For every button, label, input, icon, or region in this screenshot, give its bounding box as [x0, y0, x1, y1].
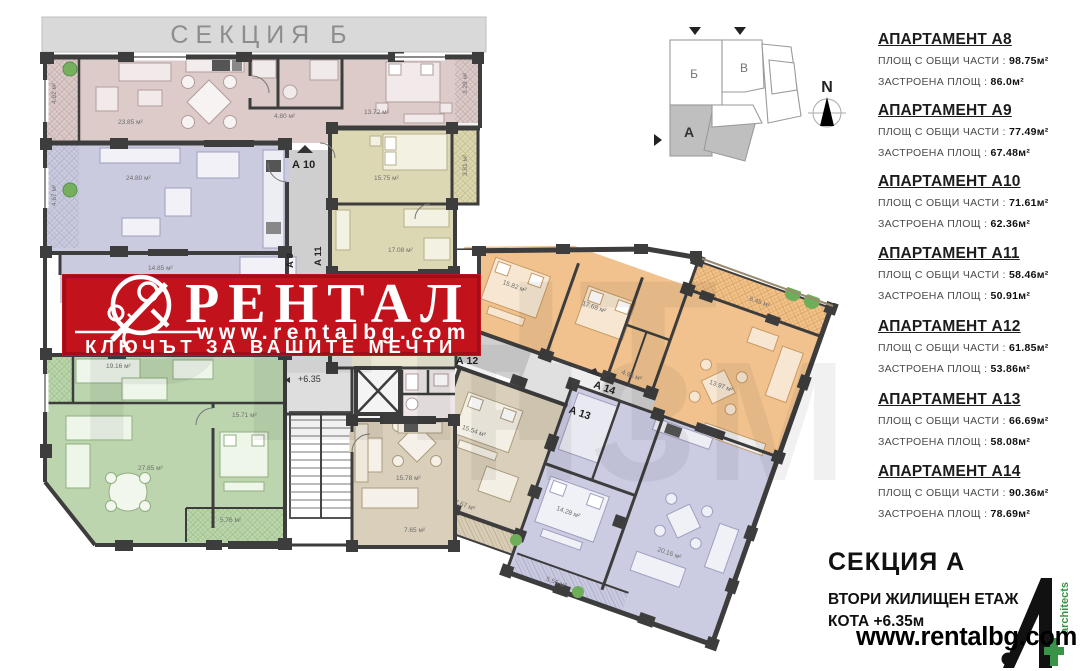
- svg-text:3.81 м²: 3.81 м²: [462, 154, 469, 176]
- svg-text:4.80 м²: 4.80 м²: [274, 113, 296, 120]
- svg-text:Б: Б: [690, 67, 698, 81]
- svg-text:А 10: А 10: [292, 159, 315, 171]
- svg-text:15.75 м²: 15.75 м²: [374, 175, 400, 182]
- svg-text:4.92 м²: 4.92 м²: [51, 82, 58, 104]
- svg-text:7.65 м²: 7.65 м²: [404, 527, 426, 534]
- svg-text:В: В: [740, 61, 748, 75]
- svg-text:5.76 м²: 5.76 м²: [220, 517, 242, 524]
- svg-text:КЛЮЧЪТ ЗА ВАШИТЕ МЕЧТИ: КЛЮЧЪТ ЗА ВАШИТЕ МЕЧТИ: [85, 336, 457, 357]
- svg-text:СЕКЦИЯ Б: СЕКЦИЯ Б: [170, 21, 353, 49]
- svg-text:3.29 м²: 3.29 м²: [462, 72, 469, 94]
- svg-text:24.80 м²: 24.80 м²: [126, 175, 152, 182]
- svg-text:А: А: [684, 124, 694, 140]
- svg-text:N: N: [821, 79, 833, 96]
- svg-text:НЗМ: НЗМ: [460, 327, 855, 517]
- svg-text:13.72 м²: 13.72 м²: [364, 109, 390, 116]
- svg-text:4.67 м²: 4.67 м²: [51, 184, 58, 206]
- svg-text:23.85 м²: 23.85 м²: [118, 119, 144, 126]
